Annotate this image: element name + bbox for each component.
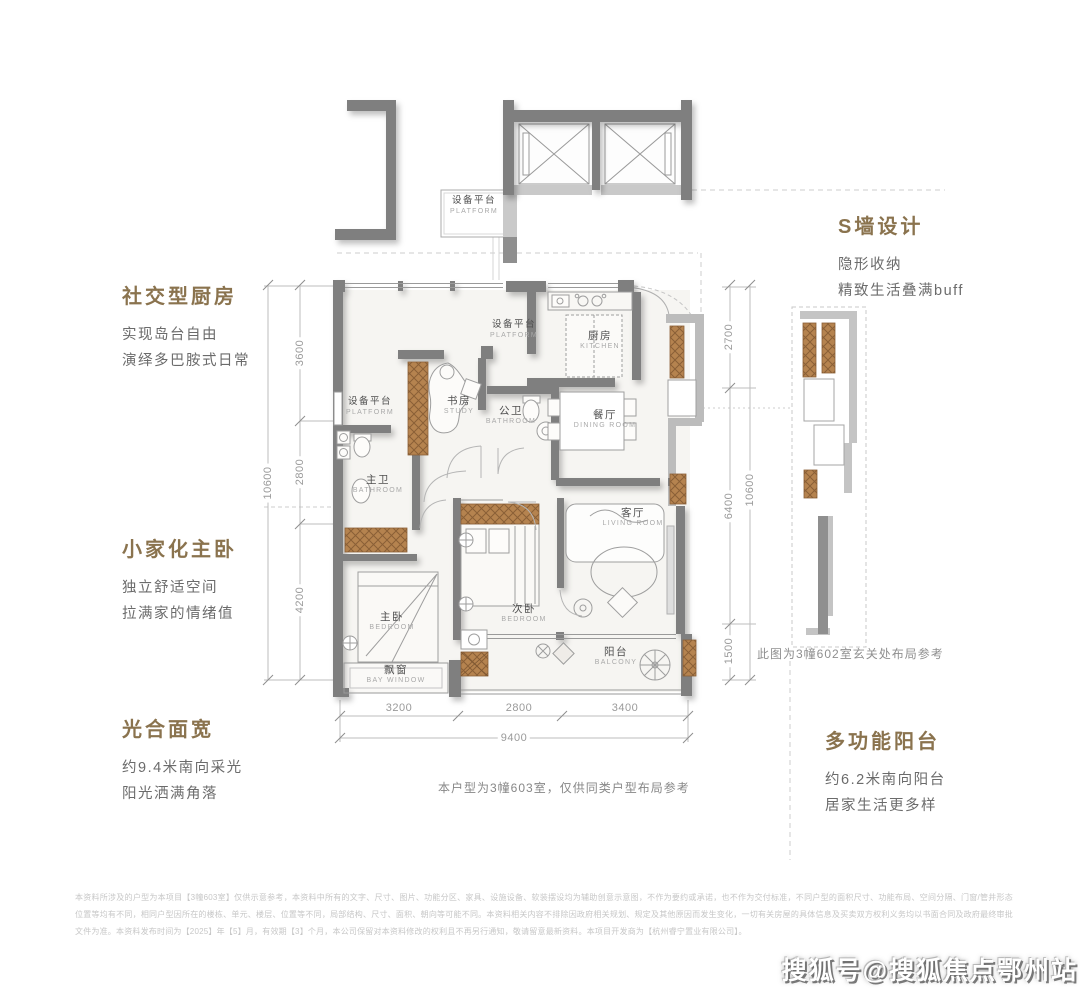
room-master-bath-en: BATHROOM [353,487,403,495]
room-platform-top-en: PLATFORM [450,208,498,216]
dim-bottom-3400: 3400 [609,702,641,714]
callout-balcony-line2: 居家生活更多样 [825,793,946,819]
room-label-living: 客厅 LIVING ROOM [603,507,664,528]
callout-master: 小家化主卧 独立舒适空间 拉满家的情绪值 [122,533,237,627]
room-master-bed-en: BEDROOM [369,624,414,632]
room-second-bed-en: BEDROOM [501,616,546,624]
room-study-en: STUDY [444,408,474,416]
entry-reference-note: 此图为3幢602室玄关处布局参考 [757,645,944,662]
room-dining-cn: 餐厅 [574,409,637,421]
dim-left-3600: 3600 [294,337,306,369]
floorplan-page: 设备平台 PLATFORM 厨房 KITCHEN 设备平台 PLATFORM 设… [0,0,1080,990]
dim-left-4200: 4200 [294,584,306,616]
room-second-bed-cn: 次卧 [501,603,546,615]
callout-kitchen-title: 社交型厨房 [122,280,250,309]
dim-bottom-2800: 2800 [503,702,535,714]
callout-kitchen: 社交型厨房 实现岛台自由 演绎多巴胺式日常 [122,280,250,374]
room-platform-mid-cn: 设备平台 [490,320,538,331]
room-balcony-cn: 阳台 [595,646,638,658]
room-platform-left-cn: 设备平台 [346,397,394,408]
callout-master-line2: 拉满家的情绪值 [122,601,237,627]
room-label-kitchen: 厨房 KITCHEN [580,330,620,351]
callout-swall: S墙设计 隐形收纳 精致生活叠满buff [838,210,964,304]
room-dining-en: DINING ROOM [574,422,637,430]
room-label-platform-top: 设备平台 PLATFORM [450,196,498,216]
dim-right-1500: 1500 [723,635,735,667]
room-master-bed-cn: 主卧 [369,611,414,623]
floor-plan-drawing [0,0,1080,990]
room-living-cn: 客厅 [603,507,664,519]
callout-master-line1: 独立舒适空间 [122,575,237,601]
dim-bottom-total: 9400 [498,732,530,744]
room-platform-top-cn: 设备平台 [450,196,498,207]
room-kitchen-cn: 厨房 [580,330,620,342]
elevator-block [441,124,681,263]
callout-master-title: 小家化主卧 [122,533,237,562]
room-label-second-bed: 次卧 BEDROOM [501,603,546,624]
dim-left-total: 10600 [262,463,274,502]
room-label-bay-window: 飘窗 BAY WINDOW [366,664,425,685]
room-label-study: 书房 STUDY [444,395,474,416]
room-master-bath-cn: 主卫 [353,474,403,486]
callout-width-line1: 约9.4米南向采光 [122,755,243,781]
dim-bottom-3200: 3200 [383,702,415,714]
room-platform-left-en: PLATFORM [346,409,394,417]
room-guest-bath-en: BATHROOM [486,418,536,426]
sohu-watermark: 搜狐号@搜狐焦点鄂州站 [782,951,1078,987]
room-guest-bath-cn: 公卫 [486,405,536,417]
room-balcony-en: BALCONY [595,659,638,667]
room-label-guest-bath: 公卫 BATHROOM [486,405,536,426]
room-bay-window-en: BAY WINDOW [366,677,425,685]
callout-swall-title: S墙设计 [838,210,964,239]
room-label-master-bath: 主卫 BATHROOM [353,474,403,495]
callout-width-line2: 阳光洒满角落 [122,781,243,807]
room-kitchen-en: KITCHEN [580,343,620,351]
s-wall-detail [792,307,866,647]
room-label-platform-mid: 设备平台 PLATFORM [490,320,538,340]
room-label-master-bed: 主卧 BEDROOM [369,611,414,632]
callout-kitchen-line1: 实现岛台自由 [122,322,250,348]
callout-swall-line1: 隐形收纳 [838,252,964,278]
room-bay-window-cn: 飘窗 [366,664,425,676]
room-label-platform-left: 设备平台 PLATFORM [346,397,394,417]
room-platform-mid-en: PLATFORM [490,332,538,340]
callout-kitchen-line2: 演绎多巴胺式日常 [122,348,250,374]
callout-swall-line2: 精致生活叠满buff [838,278,964,304]
dim-right-2700: 2700 [723,321,735,353]
callout-balcony: 多功能阳台 约6.2米南向阳台 居家生活更多样 [825,725,946,819]
callout-balcony-title: 多功能阳台 [825,725,946,754]
room-study-cn: 书房 [444,395,474,407]
room-living-en: LIVING ROOM [603,520,664,528]
dim-left-2800: 2800 [294,456,306,488]
room-label-dining: 餐厅 DINING ROOM [574,409,637,430]
legal-disclaimer: 本资料所涉及的户型为本项目【3幢603室】仅供示意参考，本资料中所有的文字、尺寸… [75,889,1013,940]
dim-right-total: 10600 [744,470,756,509]
callout-balcony-line1: 约6.2米南向阳台 [825,767,946,793]
dim-right-6400: 6400 [723,490,735,522]
callout-width: 光合面宽 约9.4米南向采光 阳光洒满角落 [122,713,243,807]
callout-width-title: 光合面宽 [122,713,243,742]
room-label-balcony: 阳台 BALCONY [595,646,638,667]
unit-reference-note: 本户型为3幢603室，仅供同类户型布局参考 [438,779,690,796]
